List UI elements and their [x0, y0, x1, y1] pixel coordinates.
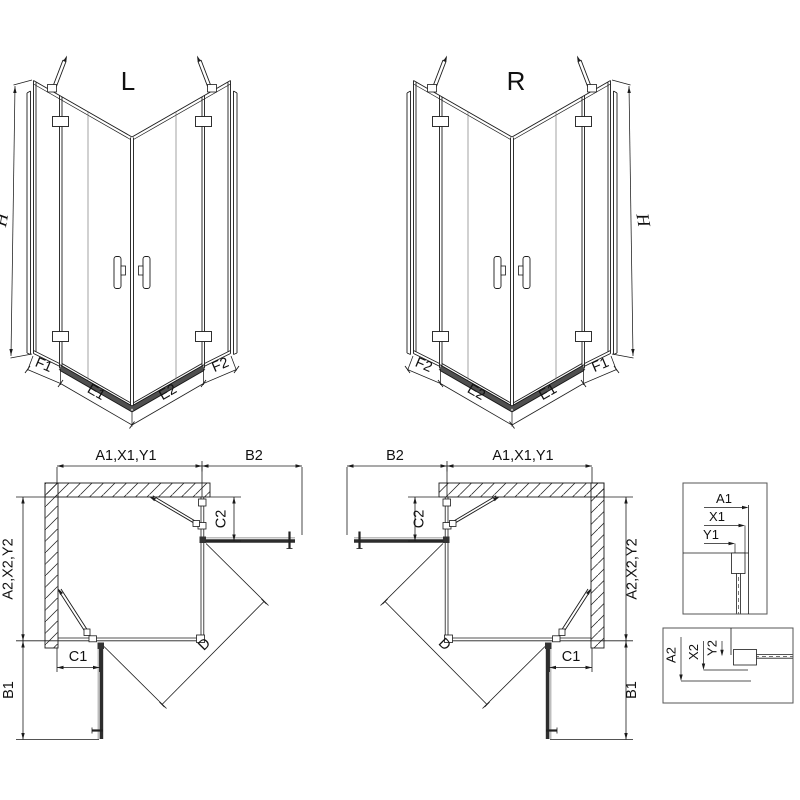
dim-label-a2x2y2-right: A2,X2,Y2: [625, 538, 641, 599]
plan-view-right: B2 A1,X1,Y1 C2 A2,X2,Y2 C1 B1 D: [347, 448, 641, 740]
dim-label-a2x2y2-left: A2,X2,Y2: [1, 538, 17, 599]
detail-label-y1: Y1: [703, 527, 719, 542]
dim-label-c1-left: C1: [69, 649, 88, 665]
dim-label-c2-left: C2: [214, 510, 230, 529]
detail-box-border: [663, 628, 793, 703]
wall-profile-section: [732, 553, 746, 574]
plan-view-left: A1,X1,Y1 B2 C2 A2,X2,Y2 C1 B1 D: [1, 448, 303, 740]
perspective-view-left: L H F1 E1 E2 F2: [0, 55, 239, 429]
dim-label-height-left: H: [0, 211, 12, 229]
wall-top-left-plan: [45, 483, 210, 497]
dim-label-b1-right: B1: [624, 681, 640, 699]
wall-top-right-plan: [439, 483, 604, 497]
dim-label-a1x1y1-left: A1,X1,Y1: [95, 448, 156, 464]
dim-label-c1-right: C1: [562, 649, 581, 665]
detail-floor-section: A2 X2 Y2: [663, 628, 793, 703]
detail-label-y2: Y2: [705, 640, 720, 656]
detail-label-x2: X2: [686, 644, 701, 660]
dim-label-height-right: H: [632, 211, 654, 229]
dim-label-c2-right: C2: [412, 510, 428, 529]
perspective-view-right: R H F2 E2 E1 F1: [405, 55, 655, 429]
variant-label-left: L: [121, 66, 135, 96]
dim-label-b2-right: B2: [386, 448, 404, 464]
detail-label-a1: A1: [716, 491, 732, 506]
wall-side-right-plan: [591, 483, 604, 648]
dim-label-b1-left: B1: [1, 681, 17, 699]
detail-wall-section: A1 X1 Y1: [683, 483, 767, 614]
floor-profile-section: [734, 650, 757, 666]
shower-enclosure-diagram: L H F1 E1 E2 F2 R H F2 E2 E1 F1 A1,X1,Y1…: [0, 0, 800, 800]
variant-label-right: R: [507, 66, 526, 96]
detail-label-a2: A2: [664, 647, 679, 663]
technical-drawing-page: L H F1 E1 E2 F2 R H F2 E2 E1 F1 A1,X1,Y1…: [0, 0, 800, 800]
dim-label-a1x1y1-right: A1,X1,Y1: [492, 448, 553, 464]
wall-side-left-plan: [45, 483, 58, 648]
dim-label-b2-left: B2: [245, 448, 263, 464]
detail-label-x1: X1: [709, 509, 725, 524]
